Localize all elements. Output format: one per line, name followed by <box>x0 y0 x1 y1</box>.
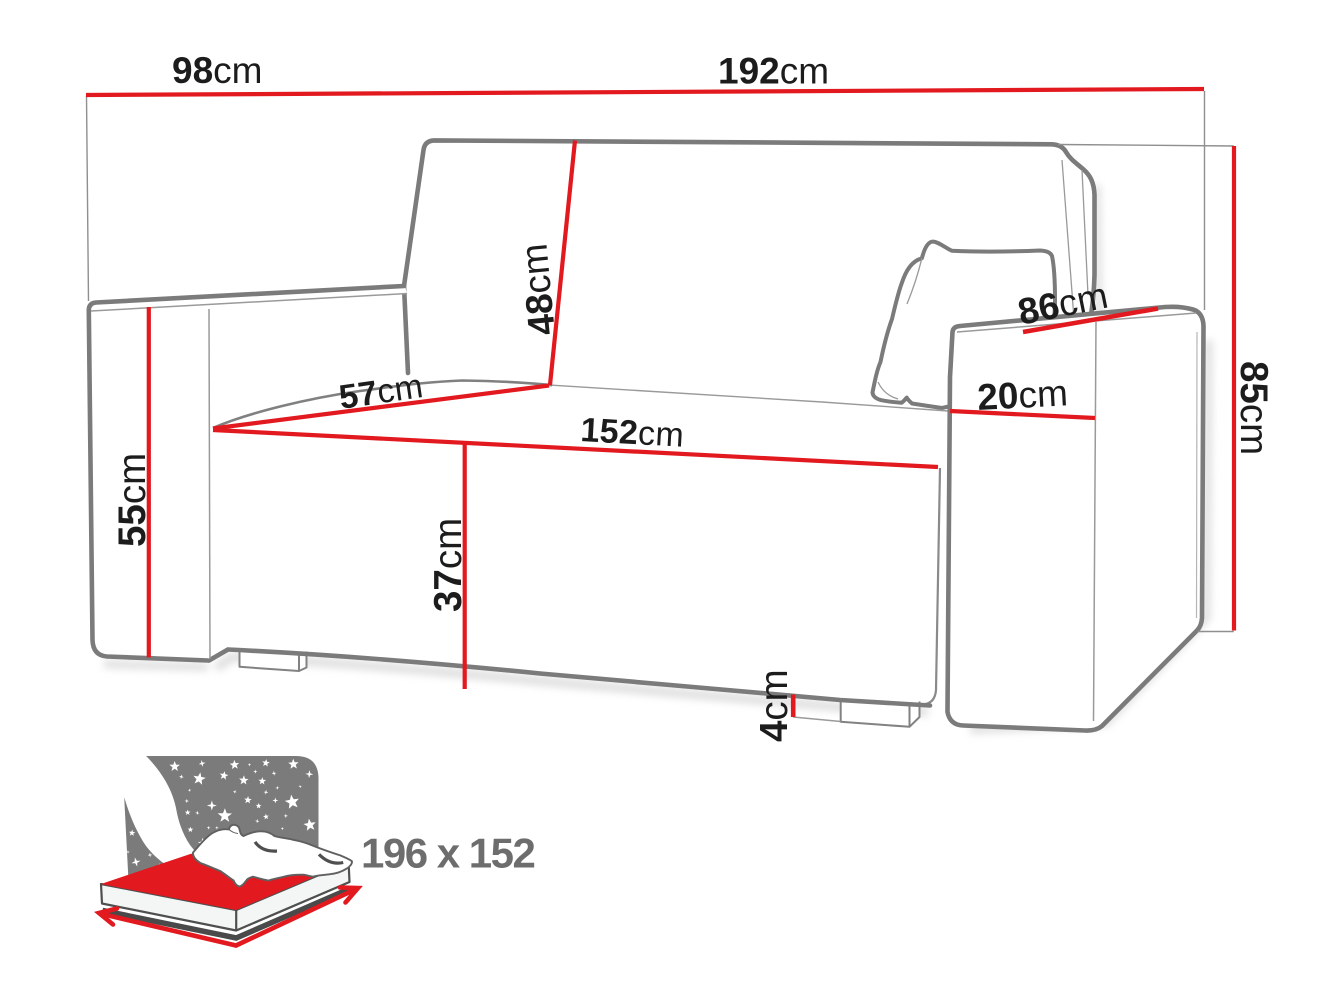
svg-text:20cm: 20cm <box>976 372 1069 418</box>
svg-text:98cm: 98cm <box>172 50 262 91</box>
svg-text:4cm: 4cm <box>753 669 796 742</box>
svg-text:85cm: 85cm <box>1232 361 1275 455</box>
svg-text:55cm: 55cm <box>111 453 154 547</box>
svg-text:196 x 152: 196 x 152 <box>361 830 534 877</box>
svg-text:37cm: 37cm <box>427 518 470 612</box>
svg-text:192cm: 192cm <box>718 51 829 92</box>
svg-text:152cm: 152cm <box>580 411 686 455</box>
svg-text:48cm: 48cm <box>512 242 563 337</box>
